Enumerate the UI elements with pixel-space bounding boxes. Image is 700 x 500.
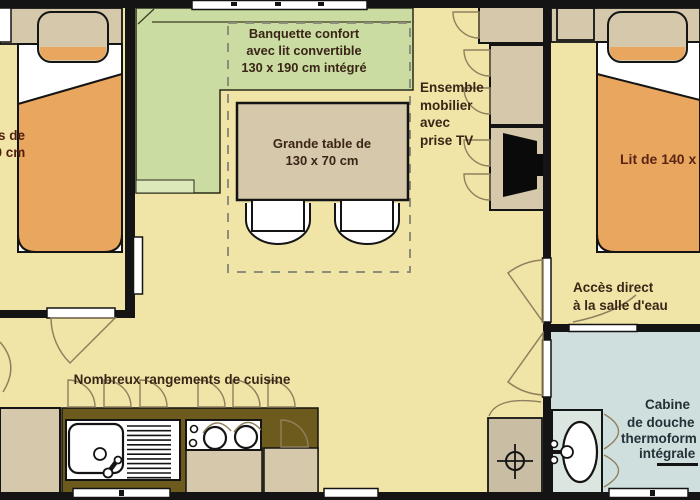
chair-right xyxy=(335,200,399,244)
banquette-label: Banquette confort avec lit convertible 1… xyxy=(203,26,405,77)
acces-label-line1: Accès direct xyxy=(573,279,668,297)
mobile-home-floor-plan: Banquette confort avec lit convertible 1… xyxy=(0,0,700,500)
window-bottom-living xyxy=(324,489,378,498)
shower-label-line4: intégrale xyxy=(639,445,695,463)
stove-knob-1 xyxy=(191,426,198,433)
door-bathroom xyxy=(543,340,552,397)
kitchen-block xyxy=(0,408,318,496)
left-bed-label-line2: 90 cm xyxy=(0,144,25,162)
furniture-cabinet-middle xyxy=(490,45,548,125)
sink-faucet-knob-1 xyxy=(104,469,113,478)
acces-label-line2: à la salle d'eau xyxy=(573,297,668,315)
ensemble-label-line4: prise TV xyxy=(420,132,484,150)
tv-furniture-label: Ensemble mobilier avec prise TV xyxy=(420,79,484,149)
table-label-line2: 130 x 70 cm xyxy=(252,152,392,169)
ensemble-label-line2: mobilier xyxy=(420,97,484,115)
stove-burner-1 xyxy=(204,427,226,449)
dining-table-label: Grande table de 130 x 70 cm xyxy=(252,135,392,169)
stove-burner-2 xyxy=(235,426,257,448)
door-bedroom2 xyxy=(543,258,552,322)
washbasin xyxy=(551,410,603,494)
kitchen-storage-label: Nombreux rangements de cuisine xyxy=(58,371,306,389)
ensemble-label-line3: avec xyxy=(420,114,484,132)
wall-bedroom2-left xyxy=(543,0,551,492)
window-bottom-bathroom xyxy=(609,489,688,498)
shower-label-underline xyxy=(657,463,698,466)
chair-left xyxy=(246,200,310,244)
kitchen-low-cabinet-2 xyxy=(264,448,318,496)
fridge-cabinet xyxy=(0,408,60,496)
ensemble-label-line1: Ensemble xyxy=(420,79,484,97)
banquette-label-line3: 130 x 190 cm intégré xyxy=(203,60,405,77)
stove-knob-2 xyxy=(190,440,197,447)
door-bedroom2-to-bathroom xyxy=(569,325,637,332)
right-bed-label: Lit de 140 x xyxy=(620,150,696,168)
sink-faucet-knob-2 xyxy=(115,457,122,464)
window-left-edge xyxy=(0,8,11,42)
bathroom-access-label: Accès direct à la salle d'eau xyxy=(573,279,668,314)
left-bed-blanket xyxy=(18,74,122,252)
door-leaf-living xyxy=(134,237,143,294)
door-bedroom1 xyxy=(47,308,115,318)
table-label-line1: Grande table de xyxy=(252,135,392,152)
furniture-cabinet-top xyxy=(479,5,548,43)
banquette-label-line1: Banquette confort xyxy=(203,26,405,43)
left-bed-label-line1: s de xyxy=(0,127,25,145)
kitchen-low-cabinet-1 xyxy=(186,448,262,496)
shower-label-line1: Cabine xyxy=(645,396,690,414)
banquette-label-line2: avec lit convertible xyxy=(203,43,405,60)
